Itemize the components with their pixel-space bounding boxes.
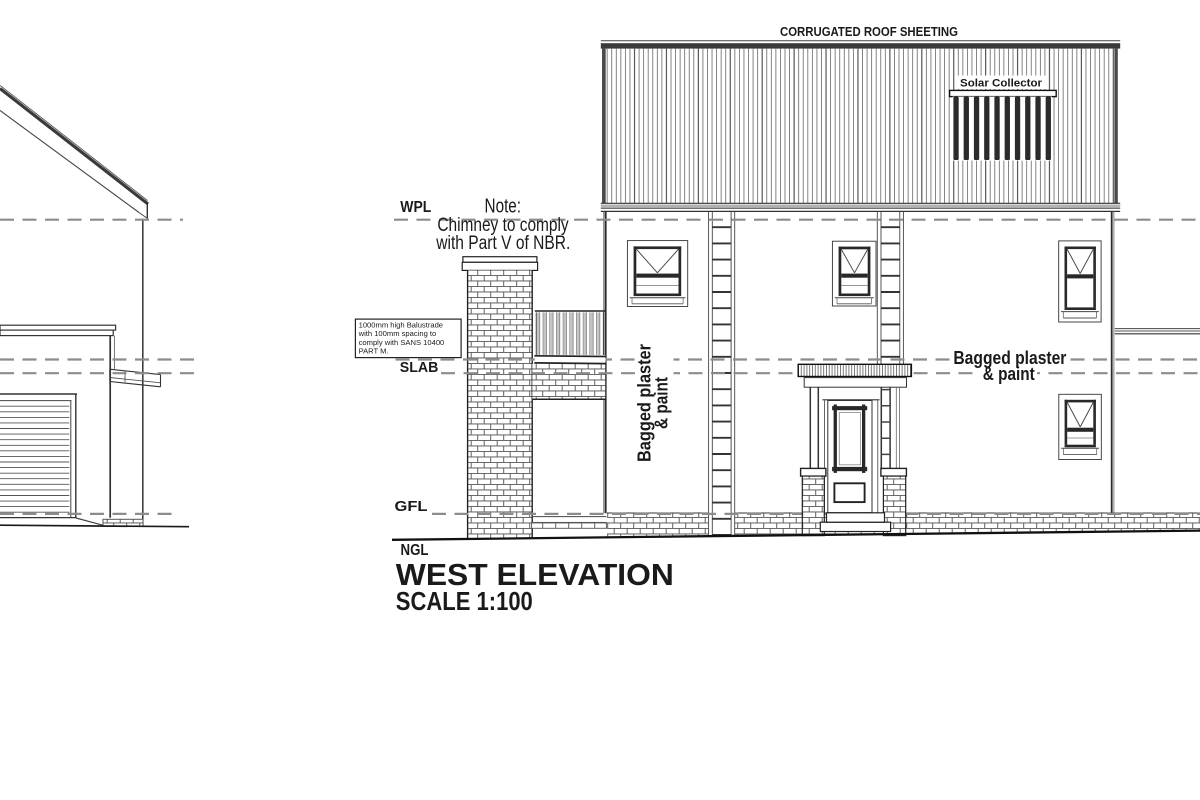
svg-text:PART M.: PART M. [359, 346, 389, 355]
svg-text:CORRUGATED ROOF SHEETING: CORRUGATED ROOF SHEETING [780, 25, 958, 39]
svg-text:WPL: WPL [400, 199, 431, 216]
svg-text:GFL: GFL [395, 498, 428, 515]
svg-text:Solar Collector: Solar Collector [960, 77, 1043, 89]
svg-text:with Part V of NBR.: with Part V of NBR. [435, 233, 570, 254]
svg-text:& paint: & paint [652, 377, 672, 429]
svg-text:SLAB: SLAB [400, 360, 439, 376]
svg-text:& paint: & paint [983, 364, 1035, 384]
svg-text:SCALE 1:100: SCALE 1:100 [396, 586, 533, 616]
